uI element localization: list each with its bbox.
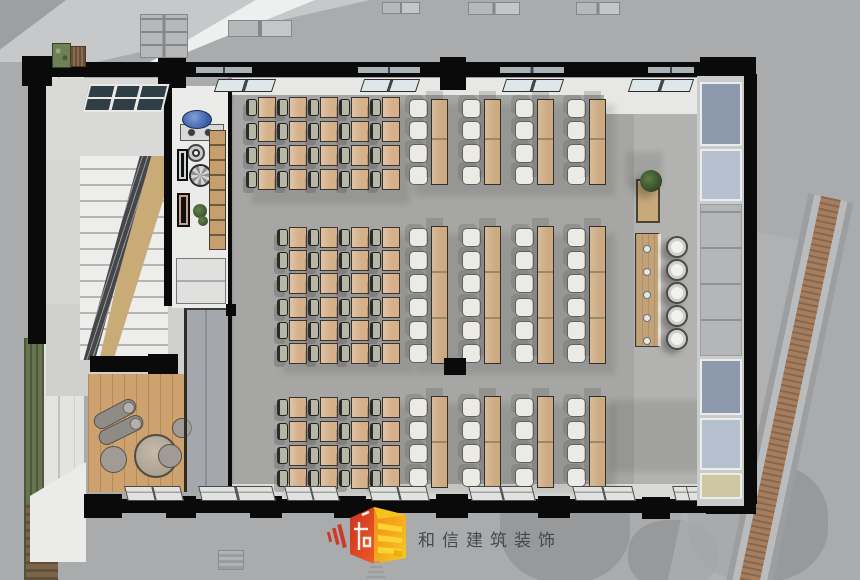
planter-box-brown xyxy=(70,46,86,67)
window xyxy=(700,204,742,356)
skylight-window xyxy=(214,79,276,92)
wall xyxy=(742,74,757,504)
skylight-window xyxy=(360,79,420,92)
skylight-window xyxy=(502,79,564,92)
window xyxy=(700,473,742,499)
skylight-window xyxy=(628,79,694,92)
window xyxy=(358,65,420,75)
window-sill xyxy=(198,486,276,501)
window xyxy=(648,65,694,75)
window xyxy=(196,65,252,75)
brand-watermark: 和信建筑装饰 xyxy=(322,500,662,578)
floor-plan-render: 和信建筑装饰 xyxy=(0,0,860,580)
wall xyxy=(28,62,46,344)
structural-column xyxy=(84,494,122,518)
wall xyxy=(228,79,232,499)
window xyxy=(700,82,742,146)
window xyxy=(700,418,742,470)
window xyxy=(700,149,742,201)
wall xyxy=(90,356,154,372)
structural-column xyxy=(226,304,236,316)
wall xyxy=(148,354,178,374)
window-sill xyxy=(124,486,184,501)
brand-text: 和信建筑装饰 xyxy=(418,526,562,551)
window-sill xyxy=(284,486,340,501)
planter-box-green xyxy=(52,43,71,68)
wall xyxy=(164,86,172,306)
structural-column xyxy=(744,356,756,376)
window xyxy=(700,359,742,415)
structural-column xyxy=(440,57,466,90)
structural-column xyxy=(444,358,466,375)
window-sill xyxy=(468,486,536,501)
window xyxy=(500,65,564,75)
stair-room-skylight xyxy=(83,84,170,112)
structural-column xyxy=(22,56,52,86)
hexin-cube-logo-icon xyxy=(322,500,418,578)
window-sill xyxy=(368,486,430,501)
window-sill xyxy=(572,486,636,501)
